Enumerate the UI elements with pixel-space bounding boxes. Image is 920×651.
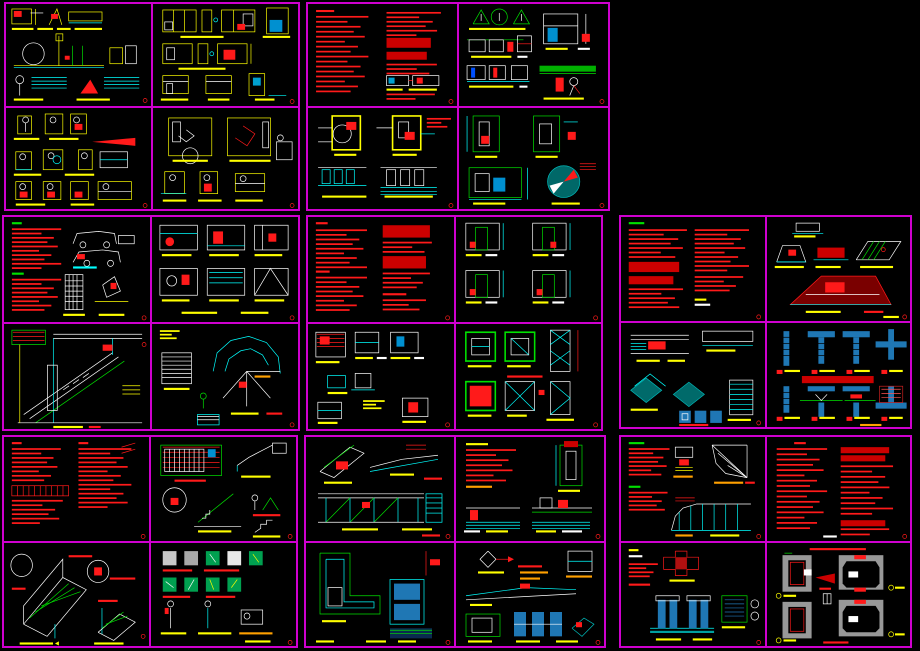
sheet-grid xyxy=(620,216,911,428)
drawing-sheet-roof-plan-details[interactable] xyxy=(766,216,912,322)
sheet-linework xyxy=(152,324,298,429)
sheet-grid xyxy=(305,436,605,647)
sheet-linework xyxy=(306,437,454,541)
sheet-linework xyxy=(308,108,457,210)
sheet-linework xyxy=(6,4,151,106)
drawing-sheet-room-plans[interactable] xyxy=(152,107,299,211)
drawing-sheet-notes-and-vehicle-details[interactable] xyxy=(3,216,151,323)
sheet-linework xyxy=(459,4,608,106)
drawing-sheet-equipment-details[interactable] xyxy=(458,107,609,211)
sheet-grid xyxy=(620,436,911,647)
sheet-group-middle-left xyxy=(2,215,300,431)
sheet-linework xyxy=(621,323,765,427)
drawing-sheet-design-notes[interactable] xyxy=(307,216,455,323)
drawing-sheet-detail-elevations[interactable] xyxy=(5,3,152,107)
sheet-group-middle-middle xyxy=(306,215,603,431)
sheet-grid xyxy=(3,216,299,430)
drawing-sheet-wall-sections[interactable] xyxy=(455,436,605,542)
sheet-linework xyxy=(151,543,296,647)
drawing-sheet-cabinet-details[interactable] xyxy=(152,3,299,107)
sheet-group-bottom-right xyxy=(619,435,912,648)
sheet-linework xyxy=(456,437,604,541)
drawing-sheet-door-window-details[interactable] xyxy=(455,216,603,323)
drawing-sheet-stair-plan-details[interactable] xyxy=(150,436,297,542)
sheet-linework xyxy=(306,543,454,647)
sheet-group-top-middle xyxy=(306,2,610,211)
sheet-group-top-left xyxy=(4,2,300,211)
sheet-linework xyxy=(621,217,765,321)
sheet-linework xyxy=(456,324,602,429)
sheet-linework xyxy=(4,543,149,647)
sheet-linework xyxy=(308,4,457,106)
drawing-sheet-highlighted-plan-details[interactable] xyxy=(307,107,458,211)
sheet-linework xyxy=(767,437,911,541)
sheet-linework xyxy=(152,217,298,322)
drawing-sheet-ramp-truss-sections[interactable] xyxy=(305,436,455,542)
drawing-sheet-furniture-figures[interactable] xyxy=(5,107,152,211)
sheet-linework xyxy=(459,108,608,210)
sheet-grid xyxy=(307,216,602,430)
drawing-sheet-notes-with-table[interactable] xyxy=(3,436,150,542)
drawing-sheet-design-notes[interactable] xyxy=(766,436,912,542)
drawing-sheet-plan-details[interactable] xyxy=(307,323,455,430)
drawing-sheet-entrance-details[interactable] xyxy=(151,216,299,323)
sheet-grid xyxy=(3,436,297,647)
drawing-sheet-design-notes[interactable] xyxy=(620,216,766,322)
sheet-linework xyxy=(621,543,765,647)
sheet-grid xyxy=(5,3,299,210)
drawing-sheet-notes-and-curved-section[interactable] xyxy=(620,436,766,542)
cad-drawing-canvas[interactable] xyxy=(0,0,920,651)
sheet-linework xyxy=(456,543,604,647)
sheet-linework xyxy=(308,324,454,429)
sheet-linework xyxy=(4,217,150,322)
drawing-sheet-duct-details[interactable] xyxy=(305,542,455,648)
drawing-sheet-radiator-details[interactable] xyxy=(620,542,766,648)
sheet-linework xyxy=(4,324,150,429)
drawing-sheet-spiral-stair-plan[interactable] xyxy=(151,323,299,430)
sheet-group-bottom-middle xyxy=(304,435,606,648)
drawing-sheet-stair-isometric[interactable] xyxy=(3,542,150,648)
sheet-linework xyxy=(6,108,151,210)
drawing-sheet-design-notes[interactable] xyxy=(307,3,458,107)
sheet-group-middle-right xyxy=(619,215,912,429)
sheet-linework xyxy=(767,543,911,647)
sheet-linework xyxy=(456,217,602,322)
drawing-sheet-stair-isometrics[interactable] xyxy=(620,322,766,428)
sheet-linework xyxy=(153,108,298,210)
sheet-linework xyxy=(767,323,911,427)
drawing-sheet-steel-joint-details[interactable] xyxy=(766,322,912,428)
drawing-sheet-signage-details[interactable] xyxy=(150,542,297,648)
drawing-sheet-elevator-shaft-details[interactable] xyxy=(455,323,603,430)
drawing-sheet-warning-sign-details[interactable] xyxy=(458,3,609,107)
drawing-sheet-equipment-sections[interactable] xyxy=(455,542,605,648)
sheet-linework xyxy=(4,437,149,541)
sheet-linework xyxy=(621,437,765,541)
sheet-linework xyxy=(767,217,911,321)
sheet-linework xyxy=(151,437,296,541)
sheet-linework xyxy=(308,217,454,322)
sheet-grid xyxy=(307,3,609,210)
sheet-group-bottom-left xyxy=(2,435,298,648)
drawing-sheet-escalator-section[interactable] xyxy=(3,323,151,430)
drawing-sheet-column-plan-details[interactable] xyxy=(766,542,912,648)
sheet-linework xyxy=(153,4,298,106)
